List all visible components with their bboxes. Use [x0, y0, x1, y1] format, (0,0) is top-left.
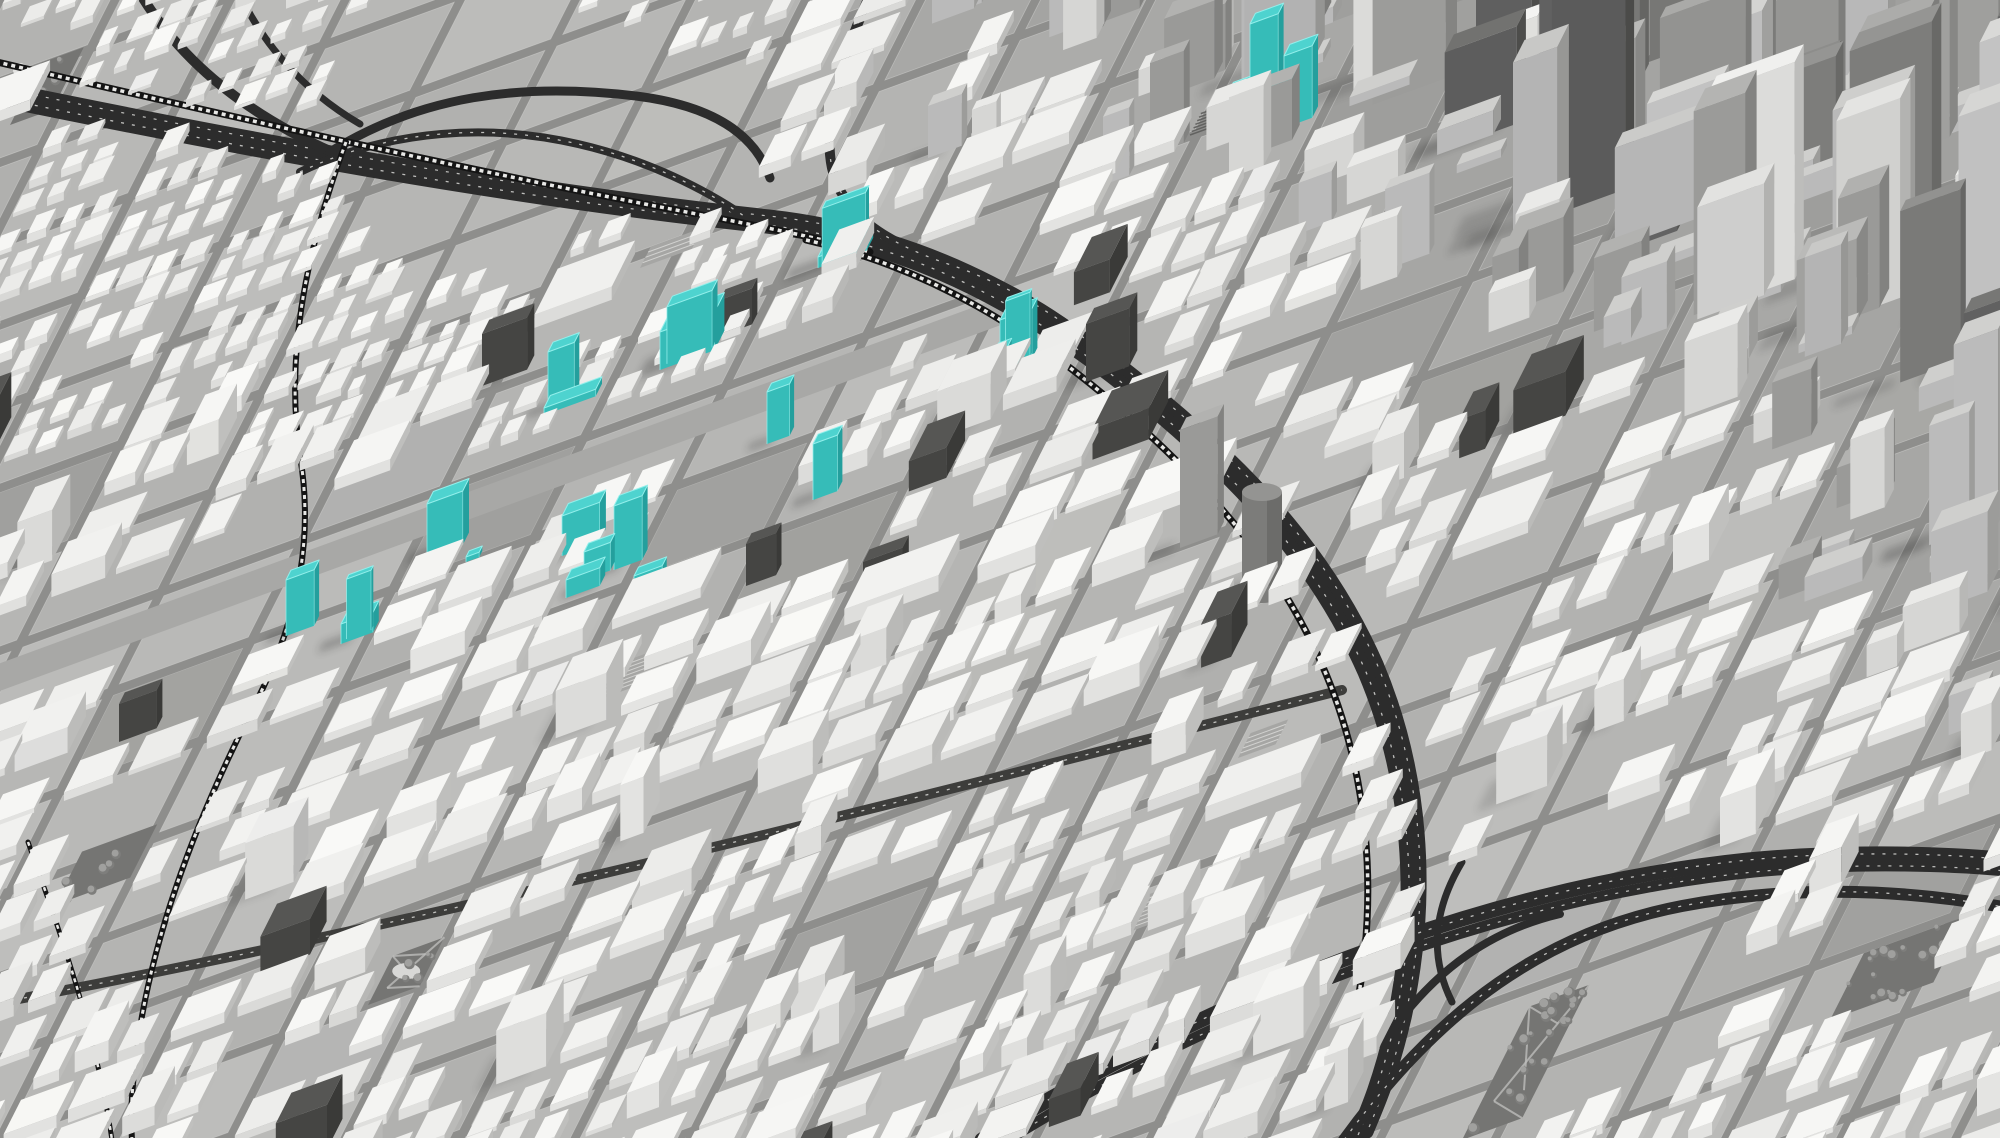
- highlighted-building-tower-j[interactable]: [286, 560, 319, 636]
- city-3d-scene[interactable]: [0, 0, 2000, 1138]
- highlighted-building-campus-tower[interactable]: [614, 485, 648, 570]
- highlighted-building-slim-tower-1[interactable]: [767, 375, 794, 444]
- highlighted-building-slim-tower-2[interactable]: [813, 425, 842, 500]
- map-viewport[interactable]: [0, 0, 2000, 1138]
